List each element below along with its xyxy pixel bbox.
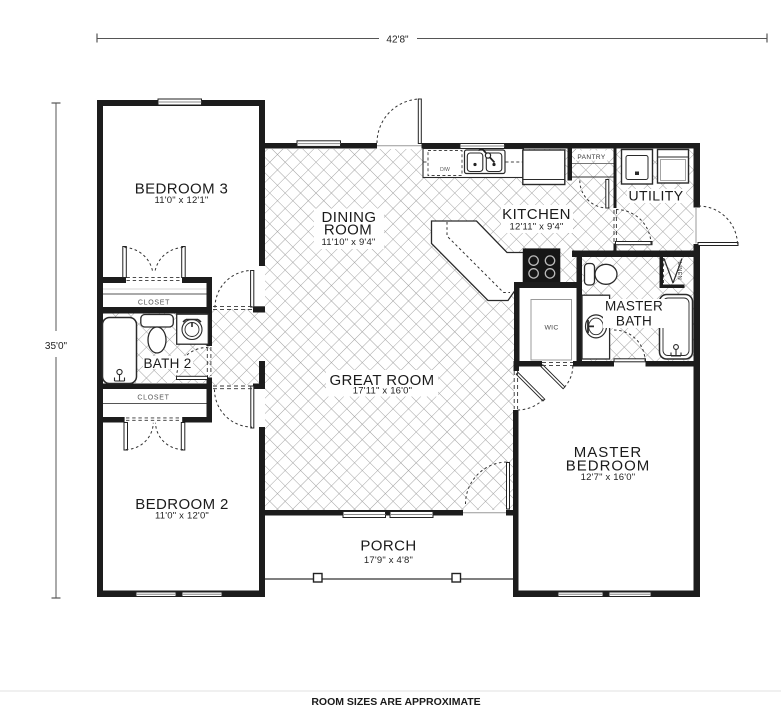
svg-text:WIC: WIC	[544, 325, 558, 332]
svg-text:BATH: BATH	[616, 314, 652, 329]
svg-text:11'0" x 12'0": 11'0" x 12'0"	[155, 511, 209, 522]
svg-text:CLOSET: CLOSET	[137, 395, 169, 402]
svg-text:35'0": 35'0"	[45, 341, 68, 352]
svg-text:BATH 2: BATH 2	[143, 356, 191, 371]
svg-text:UTILITY: UTILITY	[629, 188, 684, 204]
svg-text:PORCH: PORCH	[360, 538, 416, 555]
svg-text:12'11" x 9'4": 12'11" x 9'4"	[510, 222, 564, 233]
svg-text:MASTER: MASTER	[605, 299, 663, 314]
svg-text:D/W: D/W	[440, 167, 450, 173]
svg-text:KITCHEN: KITCHEN	[502, 206, 571, 223]
svg-text:CLOSET: CLOSET	[138, 300, 170, 307]
svg-text:42'8": 42'8"	[386, 35, 409, 46]
svg-text:17'9" x 4'8": 17'9" x 4'8"	[364, 555, 413, 566]
svg-text:PANTRY: PANTRY	[577, 154, 605, 161]
svg-text:17'11" x 16'0": 17'11" x 16'0"	[353, 386, 412, 397]
svg-text:11'10" x 9'4": 11'10" x 9'4"	[322, 237, 376, 248]
svg-text:LINEN: LINEN	[676, 262, 682, 280]
svg-text:ROOM: ROOM	[324, 222, 372, 239]
svg-text:12'7" x 16'0": 12'7" x 16'0"	[581, 472, 636, 483]
svg-text:ROOM SIZES ARE APPROXIMATE: ROOM SIZES ARE APPROXIMATE	[311, 696, 480, 708]
svg-text:11'0" x 12'1": 11'0" x 12'1"	[155, 195, 209, 206]
